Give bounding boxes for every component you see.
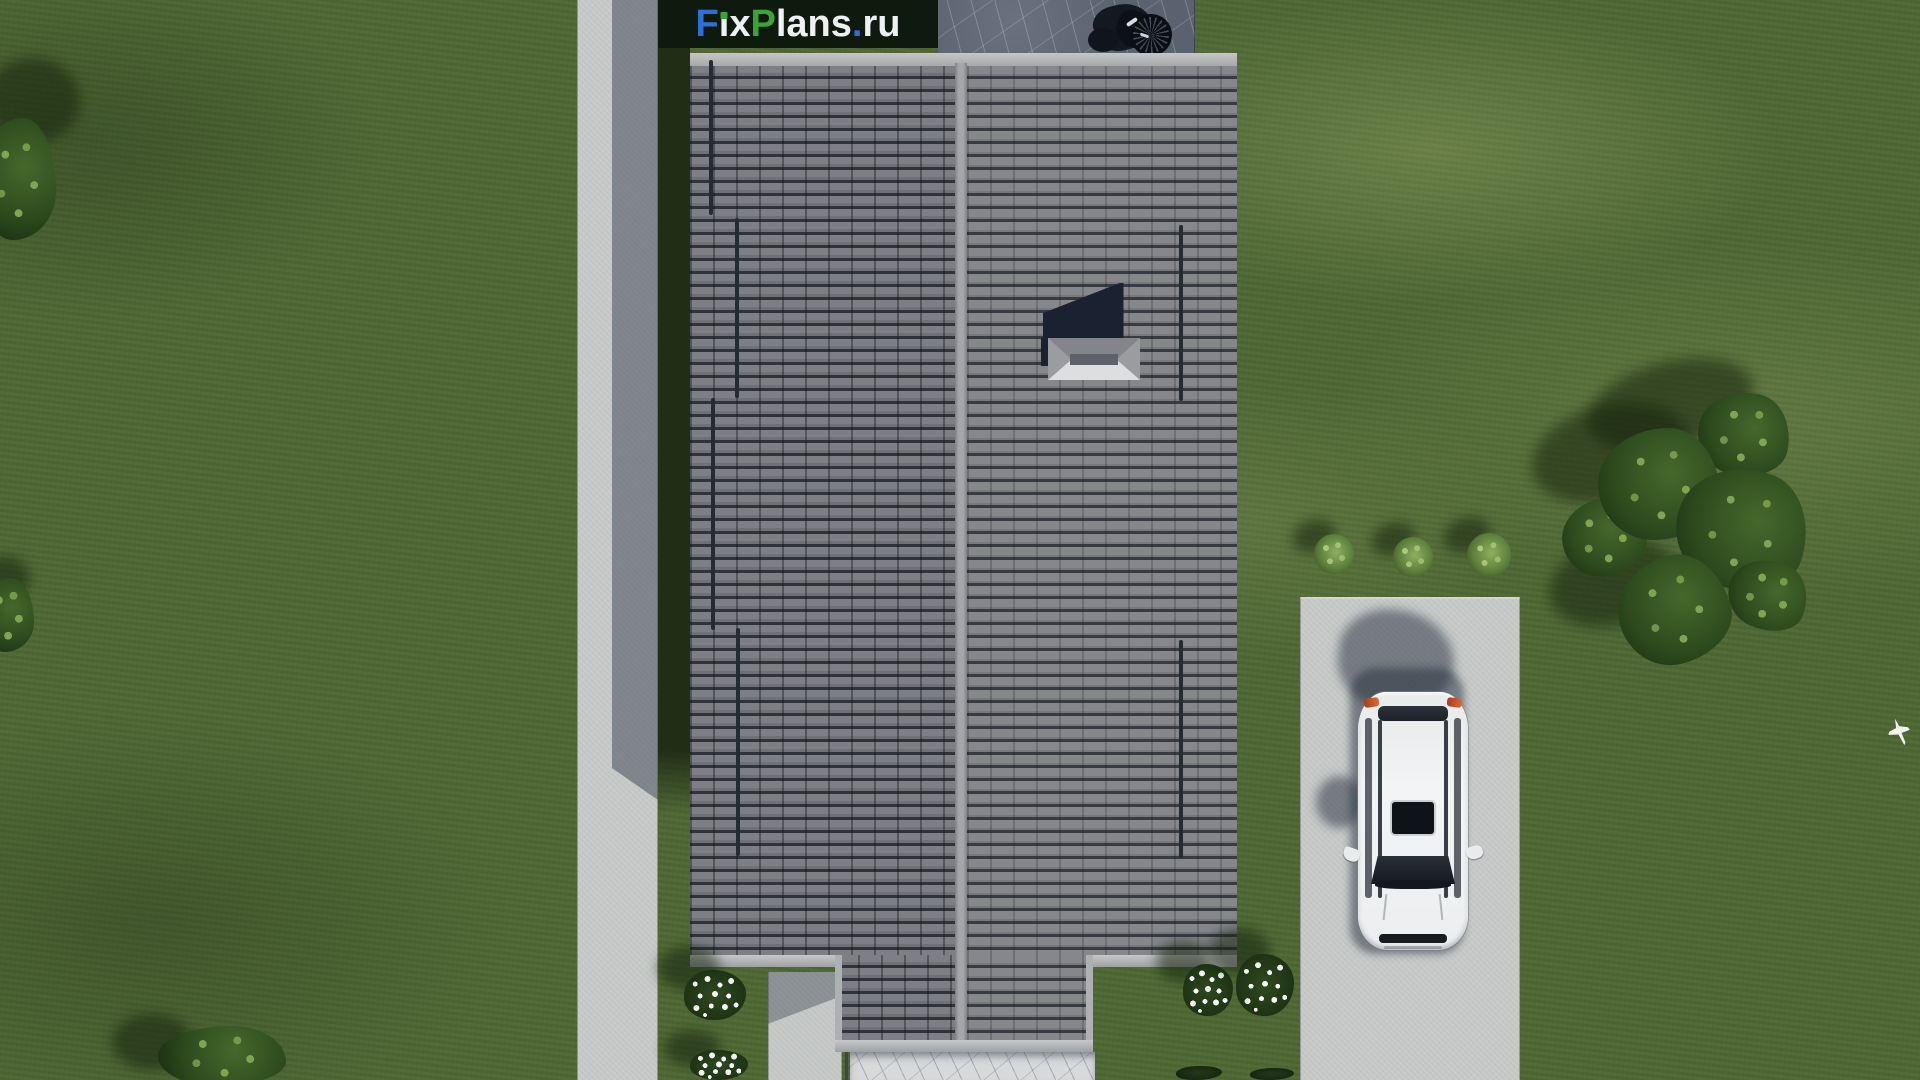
roof-face-left [690,66,955,967]
watermark-letter: a [786,5,807,43]
watermark-i-dot [721,12,728,19]
porch-fascia-side [1086,955,1093,1052]
aerial-site-render: FıxPlans.ru [0,0,1920,1080]
watermark-letter: u [877,5,900,43]
watermark-letter: P [750,5,775,43]
bush-edge [1176,1066,1222,1080]
flower-bush [1236,954,1294,1016]
flower-bush [690,1050,748,1080]
watermark: FıxPlans.ru [658,0,938,48]
watermark-letter: r [862,5,877,43]
bird [1885,716,1913,749]
chimney-opening [1070,354,1118,365]
walkway-edge-line [845,1052,848,1080]
watermark-letter: x [729,5,750,43]
car-cowl [1375,880,1451,889]
porch-fascia-side [835,955,842,1052]
car-rear-window [1378,706,1448,721]
garden-path [768,972,842,1080]
car-taillight-right [1446,697,1462,708]
car-side-glass-left [1365,718,1372,898]
chimney-cap [1048,338,1140,380]
grill-base [1088,28,1118,52]
bush-left-edge [0,578,34,652]
watermark-letter: F [696,5,719,43]
roof-seam [735,218,739,398]
roof-ridge [955,63,967,967]
roof-shadow-on-sidewalk [612,0,658,800]
roof-face-right [967,66,1237,967]
stone-walkway [850,1052,1095,1080]
porch-fascia-bottom [835,1040,1093,1052]
flower-bush [684,970,746,1020]
roof-seam [1179,225,1183,401]
car-grille [1379,934,1447,943]
car-bumper-line [1384,946,1442,949]
roof-seam [736,628,740,856]
watermark-text: FıxPlans.ru [696,5,901,43]
porch-tiles-left [835,955,955,1040]
watermark-letter: l [776,5,787,43]
roof-seam [1179,640,1183,858]
car-side-glass-right [1454,718,1461,898]
house-roof [690,53,1237,967]
porch-roof [835,955,1093,1052]
porch-ridge [955,955,967,1040]
watermark-letter: . [852,5,863,43]
round-bush [1467,533,1511,577]
round-bush [1314,534,1354,574]
car [1356,690,1470,952]
round-bush [1393,537,1433,577]
roof-shadow-on-grass [658,0,690,815]
watermark-letter: s [831,5,852,43]
watermark-letter: n [808,5,831,43]
porch-tiles-right [967,955,1093,1040]
car-sunroof [1390,800,1436,836]
watermark-letter: ı [719,5,730,43]
roof-seam [711,398,715,630]
roof-seam [709,60,713,215]
bush-edge [1250,1068,1294,1080]
